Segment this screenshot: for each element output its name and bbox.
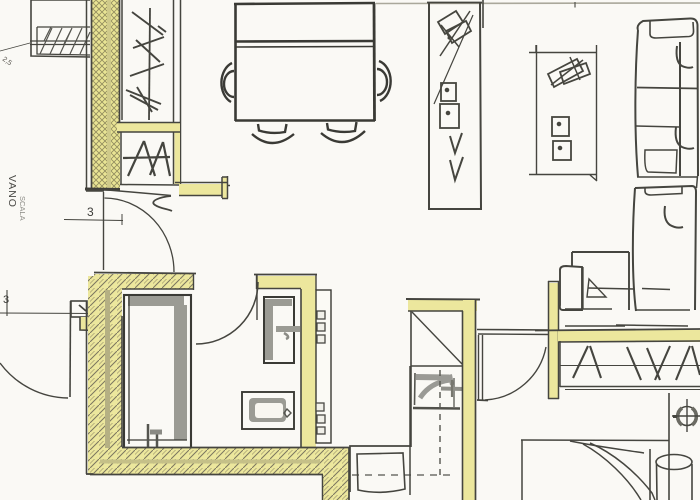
svg-text:3: 3 (87, 205, 94, 219)
svg-text:3: 3 (3, 294, 9, 306)
svg-text:SCALA: SCALA (18, 196, 27, 221)
svg-text:VANO: VANO (6, 175, 18, 208)
